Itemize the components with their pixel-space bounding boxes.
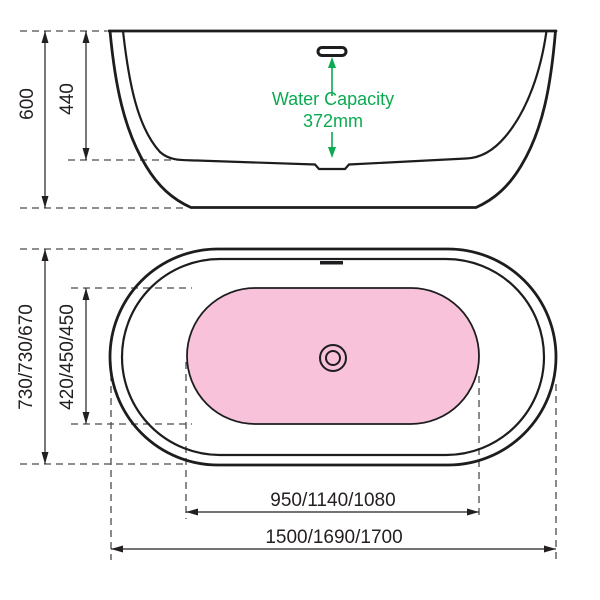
dim-inner-length-label: 950/1140/1080	[270, 490, 395, 511]
dim-overall-width-label: 730/730/670	[16, 304, 37, 410]
tub-basin-fill	[187, 288, 479, 424]
side-view: Water Capacity 372mm 600 440	[17, 31, 556, 208]
dimension-total-height: 600	[17, 31, 49, 208]
water-capacity-arrowhead-up-icon	[328, 57, 336, 68]
dimension-overall-length: 1500/1690/1700	[111, 527, 556, 553]
water-capacity-annotation: Water Capacity 372mm	[272, 57, 394, 158]
water-capacity-arrowhead-down-icon	[328, 147, 336, 158]
plan-view: 730/730/670 420/450/450 950/1140/1080 15…	[16, 249, 556, 562]
dim-inner-width-label: 420/450/450	[57, 304, 78, 410]
dimension-inner-width: 420/450/450	[57, 288, 90, 424]
dim-overall-length-label: 1500/1690/1700	[265, 527, 402, 548]
water-capacity-label: Water Capacity	[272, 89, 394, 109]
water-capacity-value: 372mm	[303, 111, 363, 131]
dimension-inner-length: 950/1140/1080	[186, 490, 479, 516]
dimension-inner-depth: 440	[57, 31, 90, 160]
bathtub-dimension-diagram: Water Capacity 372mm 600 440	[0, 0, 600, 600]
dim-inner-depth-label: 440	[57, 83, 78, 115]
overflow-slot-icon	[318, 48, 346, 56]
dim-total-height-label: 600	[17, 88, 38, 120]
overflow-mark-icon	[320, 261, 343, 265]
dimension-overall-width: 730/730/670	[16, 249, 49, 464]
